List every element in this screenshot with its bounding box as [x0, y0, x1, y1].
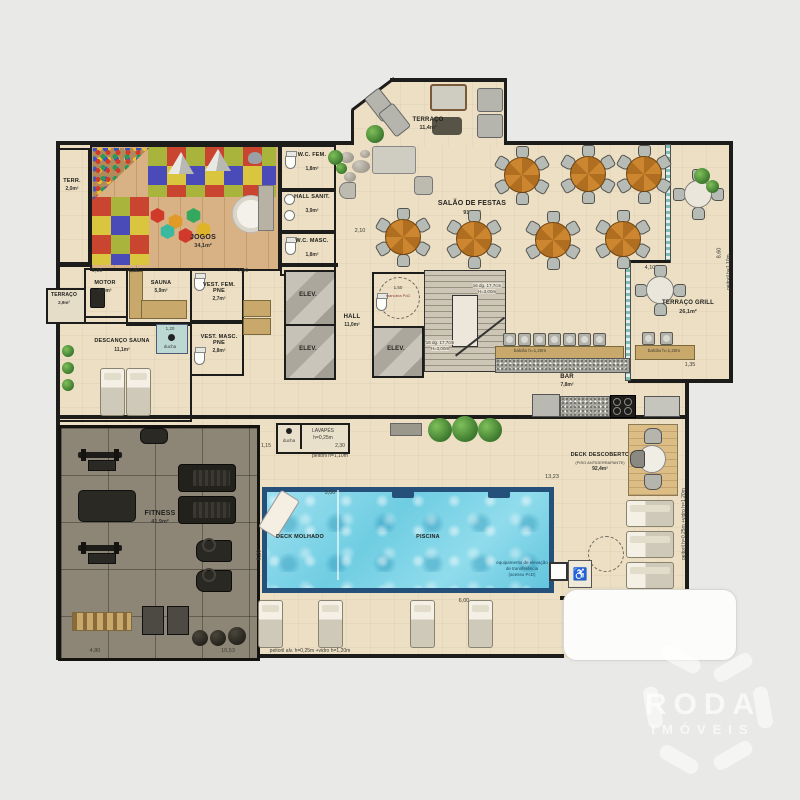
gym-bench — [88, 460, 116, 471]
rounded-panel — [563, 589, 737, 661]
stool-icon — [593, 333, 606, 346]
annotation: ducha — [283, 438, 295, 443]
armchair-icon — [477, 114, 503, 138]
relax-bed-icon — [100, 368, 125, 416]
burner-icon — [613, 407, 621, 415]
locker-icon — [243, 300, 271, 317]
dimension: 1,35 — [685, 362, 696, 368]
barbell-bench-icon — [78, 452, 122, 458]
room-area: 7,8m² — [560, 382, 573, 388]
room-area: 2,3m² — [98, 288, 111, 294]
gym-ball-icon — [228, 627, 246, 645]
relax-bed-icon — [126, 368, 151, 416]
room-area: 34,1m² — [194, 243, 211, 249]
gym-bench — [88, 553, 116, 564]
room-label: VEST. MASC. PNE — [197, 334, 241, 347]
annotation: 16 dg. 17,7cm — [473, 283, 502, 288]
annotation: LAVAPÉS — [312, 428, 334, 434]
annotation: H=3,00m — [478, 289, 496, 294]
accessibility-box: ♿ — [568, 560, 592, 588]
table-icon — [535, 222, 571, 258]
annotation: manobra PcD — [386, 293, 410, 298]
armchair-icon — [339, 182, 356, 199]
shower-drain-icon — [286, 428, 292, 434]
room-label: DECK MOLHADO — [276, 534, 324, 540]
room-label: HALL SANIT. — [290, 194, 334, 200]
room-area: 41,9m² — [151, 519, 168, 525]
barbell-bench-icon — [78, 545, 122, 551]
annotation: peitoril h=0,25m +vidro h=1,20m — [681, 488, 687, 560]
room-label: DECK DESCOBERTO — [571, 452, 630, 458]
plant-icon — [62, 345, 74, 357]
gym-ball-icon — [192, 630, 208, 646]
dimension: 2,80 — [129, 268, 140, 274]
elevator-label: ELEV. — [299, 346, 317, 353]
stool-icon — [518, 333, 531, 346]
wall — [628, 260, 670, 263]
stool-icon — [503, 333, 516, 346]
chair-icon — [692, 207, 705, 220]
plant-icon — [336, 163, 347, 174]
burner-icon — [613, 398, 621, 406]
pool-step-icon — [488, 490, 510, 498]
room-label: MOTOR — [94, 280, 115, 286]
multi-gym-icon — [78, 490, 136, 522]
room-area: 2,9m² — [58, 300, 70, 305]
dining-table-set — [570, 156, 604, 190]
annotation: peitoril h=1,10m — [312, 453, 348, 459]
sun-lounger-icon — [626, 562, 674, 589]
dimension: 6,00 — [459, 598, 470, 604]
plant-icon — [706, 180, 719, 193]
stool-icon — [563, 333, 576, 346]
dimension: 5,00 — [325, 490, 336, 496]
bush-icon — [452, 416, 478, 442]
elevator-label: ELEV. — [299, 292, 317, 299]
wall — [300, 424, 302, 449]
deck-chair-icon — [644, 474, 662, 490]
watermark-title: RODA — [645, 688, 761, 722]
elevator-label: ELEV. — [387, 346, 405, 353]
dumbbell-rack-icon — [72, 612, 132, 631]
gym-mat — [142, 606, 164, 635]
annotation: balcão h=1,20m — [514, 348, 546, 353]
room-label: SAUNA — [151, 280, 172, 286]
sofa-icon — [372, 146, 416, 174]
room-area: 3,9m² — [305, 208, 318, 214]
watermark-subtitle: IMÓVEIS — [651, 722, 754, 737]
deck-chair-icon — [644, 428, 662, 444]
room-label: TERRAÇO — [412, 117, 443, 124]
gym-ball-icon — [210, 630, 226, 646]
dimension: 8,20 — [256, 550, 262, 561]
dimension: 4,80 — [90, 648, 101, 654]
dimension: 2,10 — [355, 228, 366, 234]
deck-chair-icon — [630, 450, 645, 468]
wall — [505, 141, 732, 145]
stool-icon — [578, 333, 591, 346]
chair-icon — [673, 284, 686, 297]
wall — [628, 379, 733, 383]
dimension: 7,50 — [238, 268, 249, 274]
toilet-icon — [376, 296, 387, 311]
room-label: TERRAÇO — [51, 293, 77, 299]
dining-table-set — [626, 156, 660, 190]
room-area: 2,7m² — [212, 296, 225, 302]
dining-table-set — [605, 221, 639, 255]
dining-table-set — [385, 219, 419, 253]
dimension: 8,60 — [716, 248, 722, 259]
bar-countertop — [495, 358, 630, 373]
rock-garden-icon — [344, 172, 356, 182]
planter-icon — [390, 423, 422, 436]
sun-lounger-icon — [468, 600, 493, 648]
chair-icon — [397, 254, 410, 267]
annotation: de transferência — [506, 566, 538, 571]
armchair-icon — [477, 88, 503, 112]
sink-icon — [284, 210, 295, 221]
room-area: 2,8m² — [212, 348, 225, 354]
room-sub: (PISO ANTIDERRAPANTE) — [575, 460, 624, 465]
room-label: TERRAÇO GRILL — [662, 300, 714, 307]
room-label: FITNESS — [145, 510, 176, 518]
room-label: VEST. FEM. PNE — [197, 282, 241, 295]
dimension: 1,10 — [92, 268, 103, 274]
annotation: h=0,25m — [313, 435, 333, 441]
chair-icon — [547, 257, 560, 270]
locker-icon — [243, 318, 271, 335]
sink-unit-icon — [644, 396, 680, 417]
table-icon — [570, 156, 606, 192]
wall — [351, 110, 354, 145]
gym-mat — [167, 606, 189, 635]
plant-icon — [62, 379, 74, 391]
dimension: 2,30 — [335, 443, 345, 449]
table-icon — [385, 219, 421, 255]
toilet-icon — [194, 350, 205, 365]
annotation: peitoril h=1,10m — [726, 254, 732, 290]
annotation: H=3,00m — [431, 346, 449, 351]
dimension: 1,50 — [394, 285, 403, 290]
chair-icon — [516, 192, 529, 205]
exercise-bike-icon — [196, 540, 232, 562]
kitchen-counter — [560, 396, 610, 417]
room-area: 2,0m² — [65, 186, 78, 192]
pool-lift-icon — [549, 562, 568, 581]
pcd-turning-circle — [588, 536, 624, 572]
dining-table-set — [456, 221, 490, 255]
sauna-bench — [141, 300, 187, 319]
fridge-icon — [532, 394, 560, 417]
plant-icon — [366, 125, 384, 143]
sun-lounger-icon — [410, 600, 435, 648]
wet-deck-divider — [337, 490, 339, 580]
wall — [390, 78, 507, 82]
annotation: peitoril alv. h=0,25m +vidro h=1,20m — [270, 648, 351, 654]
room-area: 1,8m² — [305, 166, 318, 172]
table-icon — [626, 156, 662, 192]
rock-garden-icon — [360, 150, 370, 158]
table-icon — [504, 157, 540, 193]
dimension: 1,20 — [166, 326, 175, 331]
terrace-table-set — [646, 276, 672, 302]
chair-icon — [582, 191, 595, 204]
dimension: 13,23 — [545, 474, 559, 480]
burner-icon — [624, 407, 632, 415]
wall — [504, 78, 507, 145]
floor-plan-canvas: TERRAÇO 11,4m² JOGOS 34,1m² TERR. 2,0m² … — [0, 0, 800, 800]
room-label: SALÃO DE FESTAS — [438, 200, 506, 208]
bush-icon — [478, 418, 502, 442]
toy-elephant-icon — [248, 152, 262, 164]
chair-icon — [638, 191, 651, 204]
bush-icon — [428, 418, 452, 442]
treadmill-icon — [178, 464, 236, 492]
annotation: balcão h=1,20m — [648, 348, 680, 353]
room-label: JOGOS — [190, 234, 216, 242]
plant-icon — [62, 362, 74, 374]
stool-icon — [533, 333, 546, 346]
stool-icon — [548, 333, 561, 346]
gym-machine-icon — [140, 428, 168, 444]
sun-lounger-icon — [626, 500, 674, 527]
annotation: 16 dg. 17,7cm — [426, 340, 455, 345]
annotation: (acesso PcD) — [508, 572, 535, 577]
chair-icon — [617, 256, 630, 269]
room-label: PISCINA — [416, 534, 440, 540]
stool-icon — [642, 332, 655, 345]
room-area: 11,1m² — [114, 347, 130, 353]
annotation: equipamento de elevação — [496, 560, 548, 565]
stool-icon — [660, 332, 673, 345]
rock-garden-icon — [352, 160, 370, 173]
chair-icon — [468, 256, 481, 269]
sun-lounger-icon — [318, 600, 343, 648]
room-terr — [58, 148, 90, 264]
treadmill-icon — [178, 496, 236, 524]
shelf-icon — [258, 185, 274, 231]
annotation: ducha — [164, 344, 176, 349]
table-icon — [605, 221, 641, 257]
room-area: 11,0m² — [344, 322, 360, 328]
burner-icon — [624, 398, 632, 406]
room-label: HALL — [344, 314, 361, 321]
dining-table-set — [535, 222, 569, 256]
table-icon — [456, 221, 492, 257]
room-label: TERR. — [63, 178, 81, 184]
room-label: W.C. MASC. — [290, 238, 334, 244]
room-area: 5,9m² — [154, 288, 167, 294]
dimension: 1,15 — [261, 443, 271, 449]
room-label: BAR — [560, 374, 574, 381]
armchair-icon — [414, 176, 433, 195]
room-label: DESCANÇO SAUNA — [94, 338, 149, 344]
room-area: 11,4m² — [419, 125, 436, 131]
room-area: 26,1m² — [679, 309, 696, 315]
pool-step-icon — [392, 490, 414, 498]
exercise-bike-icon — [196, 570, 232, 592]
room-area: 1,8m² — [305, 252, 318, 258]
sun-lounger-icon — [626, 531, 674, 558]
wall — [252, 654, 564, 658]
dimension: 10,53 — [221, 648, 235, 654]
dimension: 4,10 — [645, 265, 656, 271]
dining-table-set — [504, 157, 538, 191]
sofa-icon — [430, 84, 467, 111]
sun-lounger-icon — [258, 600, 283, 648]
play-mat — [92, 197, 149, 265]
shower-drain-icon — [168, 334, 175, 341]
room-area: 92,4m² — [592, 466, 608, 472]
